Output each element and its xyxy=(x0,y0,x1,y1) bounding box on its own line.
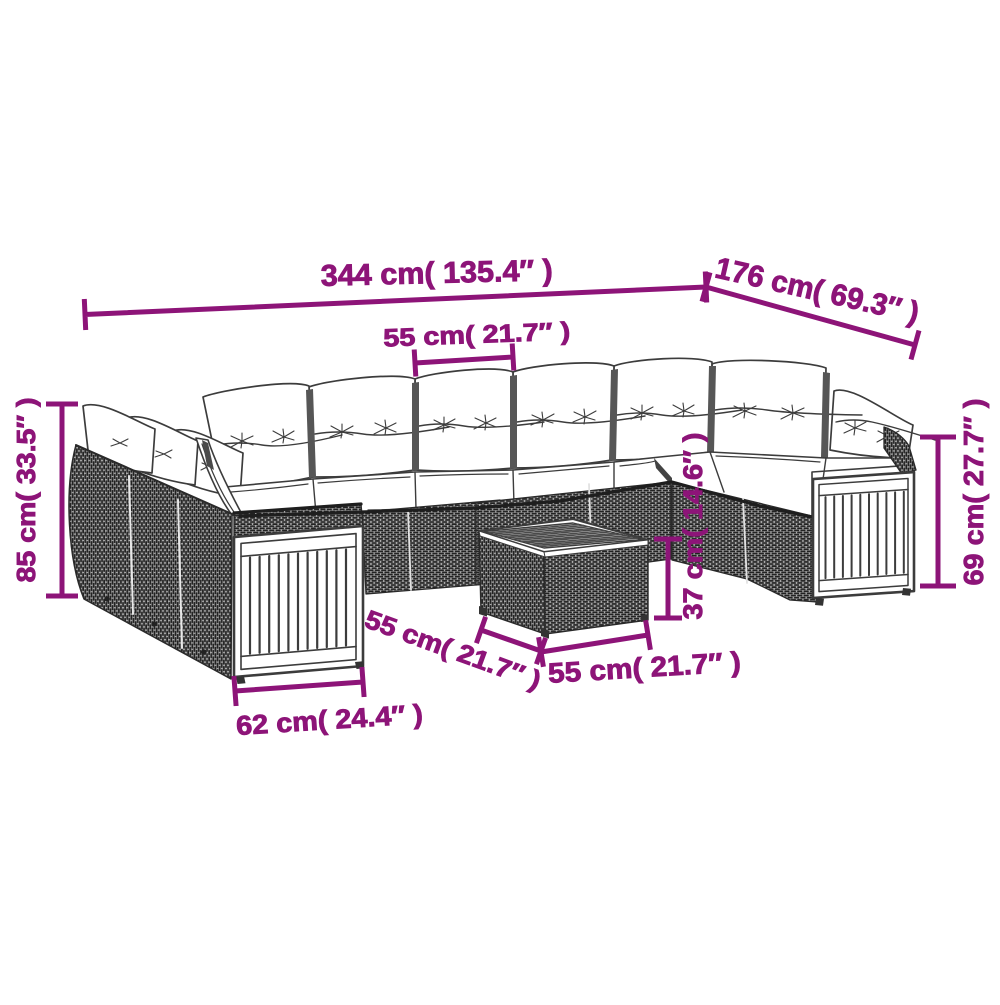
svg-text:344 cm( 135.4″ ): 344 cm( 135.4″ ) xyxy=(320,254,553,293)
svg-text:85 cm( 33.5″ ): 85 cm( 33.5″ ) xyxy=(11,398,41,583)
svg-text:37 cm( 14.6″ ): 37 cm( 14.6″ ) xyxy=(678,433,708,620)
svg-text:69 cm( 27.7″ ): 69 cm( 27.7″ ) xyxy=(958,399,989,586)
